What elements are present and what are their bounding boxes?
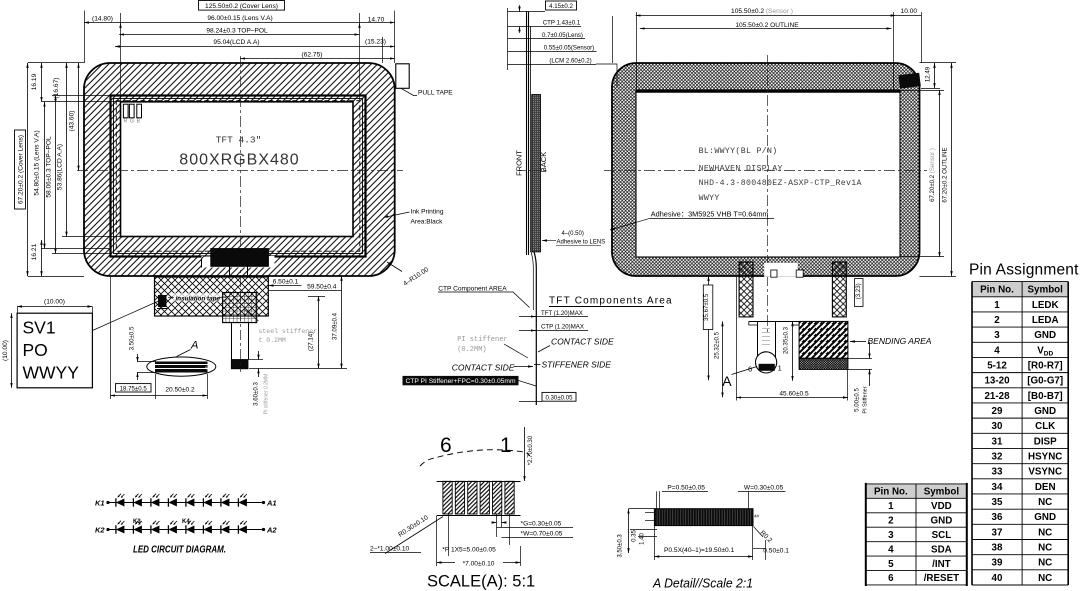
svg-text:GND: GND — [1034, 330, 1056, 341]
svg-text:HSYNC: HSYNC — [1028, 452, 1062, 463]
svg-text:Ink Printing: Ink Printing — [411, 209, 444, 216]
svg-text:VSYNC: VSYNC — [1028, 467, 1062, 478]
svg-text:0.50±0.1: 0.50±0.1 — [763, 548, 789, 555]
svg-text:1: 1 — [500, 434, 512, 457]
svg-text:TFT (1.20)MAX: TFT (1.20)MAX — [541, 310, 583, 317]
svg-text:*2.70±0.30: *2.70±0.30 — [527, 435, 534, 465]
svg-text:3.50±0.5: 3.50±0.5 — [129, 326, 136, 350]
svg-text:(10.00): (10.00) — [44, 299, 65, 306]
svg-text:Pin No.: Pin No. — [874, 487, 908, 498]
svg-text:30: 30 — [992, 421, 1003, 432]
svg-text:16.21: 16.21 — [31, 243, 38, 260]
svg-text:SV1: SV1 — [23, 318, 56, 338]
svg-text:105.50±0.2 (Sensor ): 105.50±0.2 (Sensor ) — [731, 8, 793, 15]
svg-text:4–(0.50): 4–(0.50) — [562, 231, 584, 237]
svg-text:98.24±0.3 TOP–POL: 98.24±0.3 TOP–POL — [206, 28, 268, 35]
svg-text:Symbol: Symbol — [924, 487, 960, 498]
svg-text:CLK: CLK — [1035, 421, 1055, 432]
svg-text:CTP 1.43±0.1: CTP 1.43±0.1 — [543, 20, 581, 27]
svg-text:WWYY: WWYY — [699, 194, 720, 203]
svg-text:A1: A1 — [266, 499, 277, 508]
svg-text:29: 29 — [992, 406, 1003, 417]
svg-text:A Detail//Scale 2:1: A Detail//Scale 2:1 — [652, 576, 753, 591]
svg-text:*G=0.30±0.05: *G=0.30±0.05 — [521, 520, 562, 527]
svg-text:R G B: R G B — [124, 119, 141, 125]
svg-text:13-20: 13-20 — [984, 376, 1010, 387]
svg-text:Adhesive：3M5925 VHB T=0.64mm: Adhesive：3M5925 VHB T=0.64mm — [651, 210, 769, 219]
svg-text:CTP (1.20)MAX: CTP (1.20)MAX — [541, 323, 584, 330]
svg-text:/INT: /INT — [932, 559, 951, 570]
svg-text:96.00±0.15 (Lens V.A): 96.00±0.15 (Lens V.A) — [207, 15, 272, 22]
svg-text:GND: GND — [1034, 406, 1056, 417]
svg-text:10.00: 10.00 — [901, 8, 918, 15]
svg-text:PI stiffener: PI stiffener — [457, 336, 507, 344]
svg-text:(62.75): (62.75) — [302, 51, 323, 58]
svg-text:6: 6 — [888, 573, 894, 584]
svg-text:SDA: SDA — [931, 544, 952, 555]
svg-text:NHD-4.3-800480EZ-ASXP-CTP_Rev1: NHD-4.3-800480EZ-ASXP-CTP_Rev1A — [699, 179, 862, 188]
svg-text:0.35: 0.35 — [632, 530, 638, 542]
svg-text:DISP: DISP — [1034, 436, 1057, 447]
svg-text:NEWHAVEN DISPLAY: NEWHAVEN DISPLAY — [699, 164, 783, 173]
svg-text:67.20±0.2 (Sensor ): 67.20±0.2 (Sensor ) — [929, 148, 936, 202]
svg-text:K2: K2 — [95, 526, 105, 535]
svg-text:(3.23): (3.23) — [855, 283, 862, 299]
svg-text:[G0-G7]: [G0-G7] — [1027, 376, 1063, 387]
svg-text:TFT 4.3": TFT 4.3" — [216, 135, 262, 146]
svg-text:P0.5X(40–1)=19.50±0.1: P0.5X(40–1)=19.50±0.1 — [664, 547, 734, 554]
svg-text:[B0-B7]: [B0-B7] — [1028, 391, 1063, 402]
svg-text:4#: 4# — [754, 514, 760, 519]
svg-text:t 0.2MM: t 0.2MM — [259, 337, 286, 344]
svg-text:PI stiffener 0.2MM: PI stiffener 0.2MM — [264, 374, 270, 414]
svg-text:*W=0.70±0.05: *W=0.70±0.05 — [521, 531, 563, 538]
svg-text:(0.2MM): (0.2MM) — [457, 346, 486, 354]
svg-text:Pin Assignment: Pin Assignment — [969, 262, 1079, 279]
svg-text:21-28: 21-28 — [984, 391, 1010, 402]
svg-text:DEN: DEN — [1035, 482, 1056, 493]
svg-text:125.50±0.2 (Cover Lens): 125.50±0.2 (Cover Lens) — [205, 3, 278, 10]
svg-text:CONTACT SIDE: CONTACT SIDE — [551, 337, 614, 347]
svg-text:WWYY: WWYY — [23, 363, 80, 383]
svg-text:BACK: BACK — [539, 152, 548, 172]
svg-text:5.00±0.5: 5.00±0.5 — [854, 388, 861, 412]
svg-text:GND: GND — [1034, 512, 1056, 523]
svg-text:18.75±0.5: 18.75±0.5 — [120, 385, 148, 392]
svg-text:67.20±0.2 (Cover Lens): 67.20±0.2 (Cover Lens) — [18, 135, 25, 204]
svg-text:*P 1X5=5.00±0.05: *P 1X5=5.00±0.05 — [442, 547, 496, 554]
svg-text:BL:WWYY(BL P/N): BL:WWYY(BL P/N) — [699, 146, 778, 156]
svg-text:45.60±0.5: 45.60±0.5 — [779, 390, 809, 397]
svg-text:steel stiffener: steel stiffener — [259, 328, 318, 335]
svg-text:A: A — [190, 340, 198, 352]
svg-text:25.32±0.5: 25.32±0.5 — [713, 331, 720, 359]
svg-text:34: 34 — [992, 482, 1003, 493]
svg-text:35.67±0.5: 35.67±0.5 — [703, 293, 710, 321]
svg-text:STIFFENER SIDE: STIFFENER SIDE — [542, 360, 612, 370]
svg-text:3.50±0.3: 3.50±0.3 — [618, 534, 624, 558]
svg-text:35: 35 — [992, 497, 1003, 508]
svg-text:NC: NC — [1038, 543, 1052, 554]
svg-text:1: 1 — [778, 364, 782, 373]
svg-text:4.15±0.2: 4.15±0.2 — [549, 3, 573, 10]
svg-text:(LCM 2.60±0.2): (LCM 2.60±0.2) — [549, 57, 591, 64]
svg-text:W=0.30±0.05: W=0.30±0.05 — [744, 485, 784, 492]
svg-text:3: 3 — [994, 330, 1000, 341]
svg-text:Area:Black: Area:Black — [411, 219, 444, 226]
svg-text:FRONT: FRONT — [515, 150, 524, 176]
svg-text:54.80±0.15 (Lens V.A): 54.80±0.15 (Lens V.A) — [34, 130, 41, 195]
svg-text:12.49: 12.49 — [925, 66, 932, 82]
svg-text:16.19: 16.19 — [31, 73, 38, 90]
svg-text:6: 6 — [440, 434, 452, 457]
svg-text:40: 40 — [992, 573, 1003, 584]
svg-text:67.20±0.2 OUTLINE: 67.20±0.2 OUTLINE — [942, 147, 949, 202]
svg-text:5-12: 5-12 — [987, 361, 1007, 372]
svg-text:[R0-R7]: [R0-R7] — [1028, 361, 1063, 372]
svg-text:36: 36 — [992, 512, 1003, 523]
svg-text:PO: PO — [23, 340, 48, 360]
svg-text:0.30±0.05: 0.30±0.05 — [545, 394, 573, 401]
svg-text:95.04(LCD A.A): 95.04(LCD A.A) — [213, 39, 259, 46]
svg-text:14.70: 14.70 — [368, 17, 385, 24]
svg-text:0.55±0.05(Sensor): 0.55±0.05(Sensor) — [544, 45, 594, 52]
svg-text:20.50±0.2: 20.50±0.2 — [165, 387, 195, 394]
svg-text:800XRGBX480: 800XRGBX480 — [179, 152, 299, 169]
svg-text:59.50±0.4: 59.50±0.4 — [307, 283, 337, 290]
svg-text:NC: NC — [1038, 527, 1052, 538]
svg-text:6.50±0.1: 6.50±0.1 — [273, 278, 299, 285]
svg-text:TFT Components Area: TFT Components Area — [549, 296, 673, 307]
svg-text:37: 37 — [992, 527, 1003, 538]
svg-text:0.7±0.05(Lens): 0.7±0.05(Lens) — [542, 32, 583, 39]
svg-text:NC: NC — [1038, 573, 1052, 584]
svg-text:31: 31 — [992, 436, 1003, 447]
svg-text:1.40: 1.40 — [640, 533, 646, 545]
svg-text:NC: NC — [1038, 497, 1052, 508]
svg-text:33: 33 — [992, 467, 1003, 478]
svg-text:CONTACT SIDE: CONTACT SIDE — [452, 363, 515, 373]
svg-text:1: 1 — [888, 501, 894, 512]
svg-text:PI Stiffener: PI Stiffener — [863, 386, 869, 413]
svg-text:(14.80): (14.80) — [92, 16, 113, 23]
svg-text:58.06±0.3 TOP–POL: 58.06±0.3 TOP–POL — [45, 136, 52, 198]
svg-text:4: 4 — [994, 345, 1000, 356]
svg-text:2–*1.00±0.10: 2–*1.00±0.10 — [370, 546, 410, 553]
svg-text:SCALE(A): 5:1: SCALE(A): 5:1 — [427, 573, 535, 591]
svg-text:(10.00): (10.00) — [2, 340, 9, 361]
svg-text:Pin No.: Pin No. — [980, 285, 1014, 296]
svg-text:K4: K4 — [182, 519, 190, 525]
svg-text:*7.00±0.10: *7.00±0.10 — [463, 560, 495, 567]
svg-text:GND: GND — [931, 516, 953, 527]
svg-text:(43.60): (43.60) — [69, 111, 76, 132]
svg-text:20.35±0.3: 20.35±0.3 — [783, 326, 790, 354]
svg-text:53.86(LCD A.A): 53.86(LCD A.A) — [57, 144, 64, 190]
svg-text:VDD: VDD — [931, 501, 952, 512]
svg-text:39: 39 — [992, 558, 1003, 569]
svg-text:LEDK: LEDK — [1032, 300, 1059, 311]
svg-text:BENDING AREA: BENDING AREA — [868, 336, 932, 346]
svg-text:38: 38 — [992, 543, 1003, 554]
svg-text:K1: K1 — [95, 499, 105, 508]
svg-text:PULL TAPE: PULL TAPE — [418, 90, 453, 97]
svg-text:4: 4 — [888, 544, 894, 555]
svg-text:Adhesive to LENS: Adhesive to LENS — [557, 240, 606, 246]
svg-text:A: A — [722, 373, 732, 389]
svg-text:LEDA: LEDA — [1032, 315, 1059, 326]
svg-text:SCL: SCL — [932, 530, 952, 541]
svg-text:2: 2 — [994, 315, 1000, 326]
svg-text:1: 1 — [994, 300, 1000, 311]
svg-text:2: 2 — [888, 516, 894, 527]
svg-text:A2: A2 — [266, 526, 277, 535]
svg-text:NC: NC — [1038, 558, 1052, 569]
svg-text:P=0.50±0.05: P=0.50±0.05 — [667, 485, 705, 492]
svg-text:4#: 4# — [205, 366, 211, 371]
svg-text:37.09±0.4: 37.09±0.4 — [332, 312, 339, 340]
svg-text:CTP PI Stiffener+FPC=0.30±0.: CTP PI Stiffener+FPC=0.30±0.05mm — [405, 378, 516, 385]
svg-text:CTP Component AREA: CTP Component AREA — [438, 286, 507, 293]
svg-text:32: 32 — [992, 452, 1003, 463]
svg-text:LED CIRCUIT DIAGRAM.: LED CIRCUIT DIAGRAM. — [133, 545, 226, 556]
svg-text:5: 5 — [888, 559, 894, 570]
svg-text:3.60±0.3: 3.60±0.3 — [253, 382, 260, 406]
svg-text:/RESET: /RESET — [924, 573, 959, 584]
svg-text:insulation tape: insulation tape — [176, 296, 221, 303]
svg-text:3: 3 — [888, 530, 894, 541]
svg-text:Symbol: Symbol — [1028, 285, 1064, 296]
